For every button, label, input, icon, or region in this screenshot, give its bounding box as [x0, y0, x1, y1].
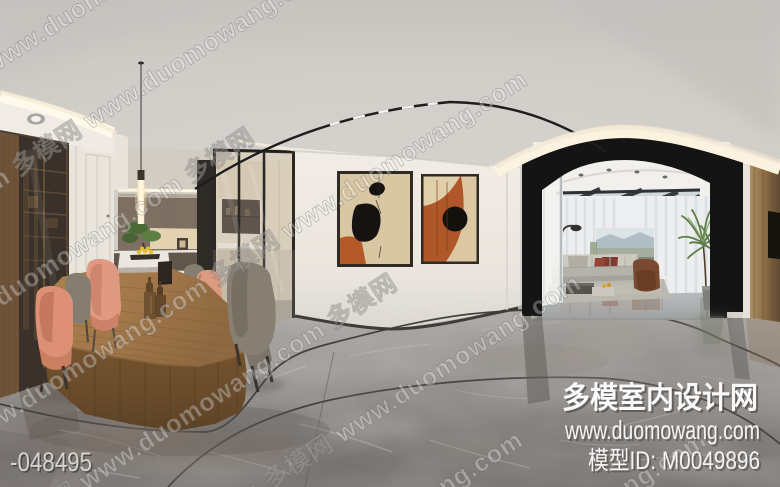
svg-text:-048495: -048495 — [10, 447, 92, 477]
svg-text:模型ID: M0049896: 模型ID: M0049896 — [588, 447, 760, 475]
svg-text:www.duomowang.com: www.duomowang.com — [564, 415, 760, 445]
svg-text:多模室内设计网: 多模室内设计网 — [562, 381, 758, 415]
